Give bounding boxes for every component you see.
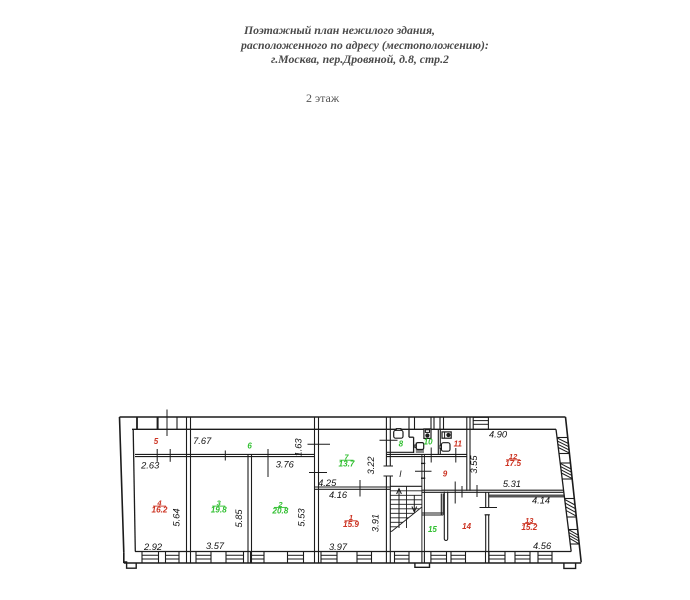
svg-text:5.53: 5.53 <box>296 508 306 527</box>
svg-text:3.55: 3.55 <box>469 455 479 474</box>
svg-text:4.25: 4.25 <box>318 478 337 488</box>
svg-text:3.91: 3.91 <box>370 514 380 532</box>
svg-text:4.14: 4.14 <box>532 496 550 506</box>
svg-text:19.8: 19.8 <box>211 505 227 514</box>
svg-text:15.2: 15.2 <box>521 523 537 532</box>
svg-text:I: I <box>399 469 402 479</box>
svg-text:3.76: 3.76 <box>276 460 295 470</box>
svg-text:7.67: 7.67 <box>193 436 212 446</box>
svg-text:8: 8 <box>399 440 404 449</box>
svg-text:14: 14 <box>462 522 471 531</box>
svg-text:17.5: 17.5 <box>505 459 521 468</box>
svg-text:10: 10 <box>424 437 433 446</box>
svg-text:16.2: 16.2 <box>152 505 168 514</box>
svg-text:2.92: 2.92 <box>143 542 163 552</box>
svg-text:1.63: 1.63 <box>294 438 304 457</box>
svg-text:5.64: 5.64 <box>172 508 182 526</box>
svg-text:9: 9 <box>443 469 448 478</box>
svg-text:4.56: 4.56 <box>533 541 552 551</box>
svg-text:6: 6 <box>247 442 252 451</box>
svg-text:3.22: 3.22 <box>366 456 376 475</box>
svg-text:5: 5 <box>154 437 159 446</box>
svg-text:13.7: 13.7 <box>339 460 355 469</box>
svg-text:4.90: 4.90 <box>489 430 508 440</box>
svg-text:5.85: 5.85 <box>234 509 244 528</box>
svg-text:2.63: 2.63 <box>140 461 160 471</box>
svg-text:3.57: 3.57 <box>206 541 225 551</box>
svg-text:5.31: 5.31 <box>503 479 521 489</box>
svg-text:20.8: 20.8 <box>271 507 288 516</box>
svg-text:4.16: 4.16 <box>329 490 348 500</box>
svg-text:3.97: 3.97 <box>329 542 348 552</box>
svg-text:11: 11 <box>454 439 463 448</box>
svg-text:15: 15 <box>428 525 437 534</box>
svg-text:15.9: 15.9 <box>343 520 359 529</box>
